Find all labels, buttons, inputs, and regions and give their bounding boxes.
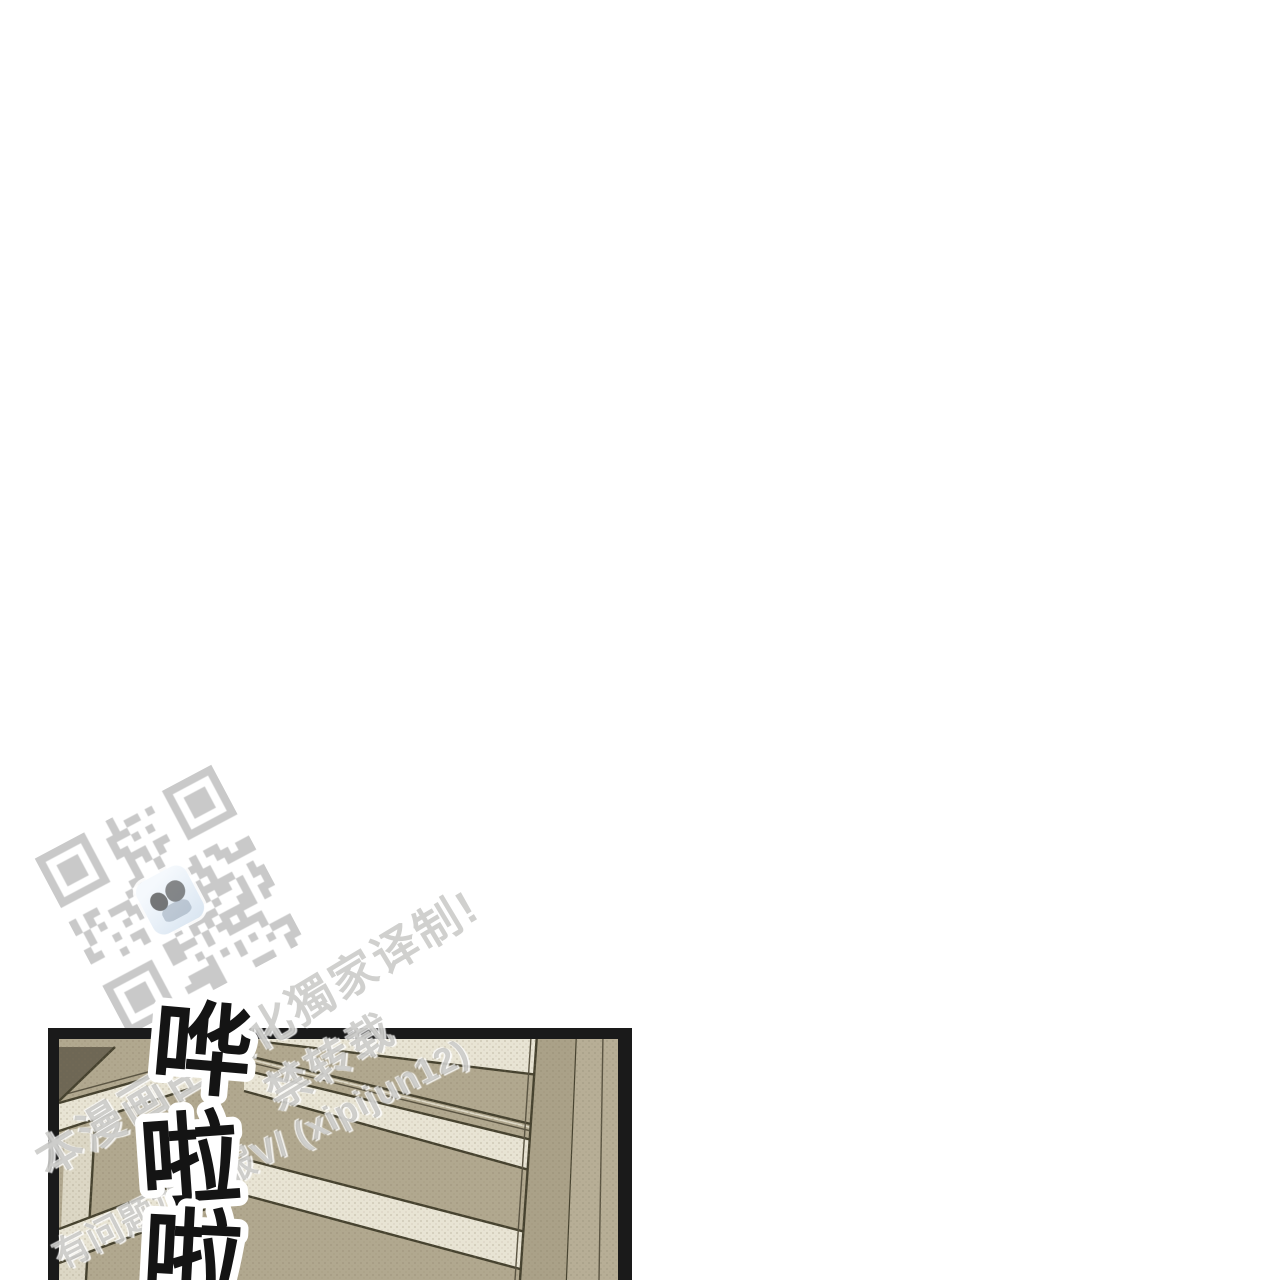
sfx-char-1: 哗 [147,988,257,1113]
sfx-char-3: 啦 [140,1196,246,1280]
sfx-text: 哗 啦 啦 [90,950,330,1280]
comic-page: 本漫画由汉化獨家译制! 禁转载 有问题加客服V/ (xipijun12) [0,0,1280,1280]
panel-border-right [618,1028,632,1280]
